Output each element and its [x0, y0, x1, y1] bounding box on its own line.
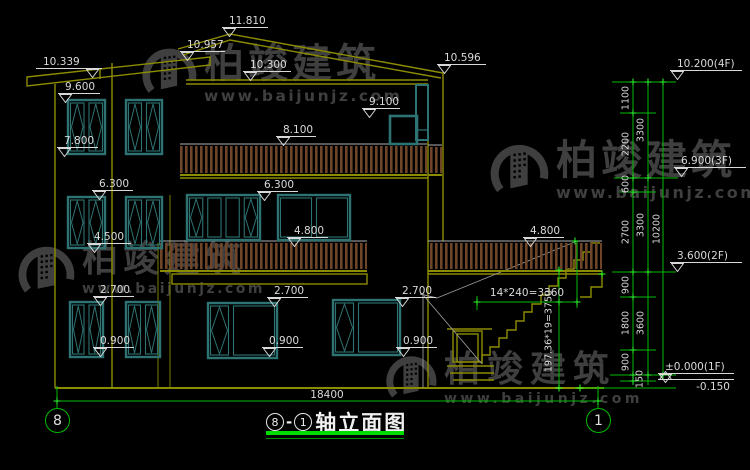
dimension-text: 3300 [636, 118, 647, 142]
title-separator: - [286, 413, 292, 431]
dimension-text: 150 [635, 370, 646, 388]
dimension-text: 18400 [310, 389, 343, 401]
axis-bubble-1-label: 1 [594, 413, 603, 429]
dimension-text: 197.36*19=3750 [544, 290, 555, 372]
title-underline-thin [266, 438, 404, 439]
dimension-text-layer: 1100220060027009001800900150330033003600… [0, 0, 750, 470]
dimension-text: 900 [621, 353, 632, 371]
dimension-text: 600 [621, 175, 632, 193]
dimension-text: 900 [621, 276, 632, 294]
dimension-text: 14*240=3360 [490, 287, 564, 299]
dimension-text: 2200 [621, 132, 632, 156]
dimension-text: 10200 [652, 214, 663, 244]
axis-bubble-1: 1 [586, 408, 611, 433]
dimension-text: 2700 [621, 220, 632, 244]
axis-bubble-8: 8 [45, 408, 70, 433]
dimension-text: 1800 [621, 311, 632, 335]
title-axis-from: 8 [266, 413, 284, 431]
title-axis-to: 1 [294, 413, 312, 431]
cad-elevation-canvas: 柏竣建筑 www.baijunjz.com 柏竣建筑 www.baijunjz.… [0, 0, 750, 470]
title-underline [266, 431, 404, 435]
dimension-text: 3600 [636, 311, 647, 335]
dimension-text: 3300 [636, 213, 647, 237]
axis-bubble-8-label: 8 [53, 413, 62, 429]
dimension-text: 1100 [621, 86, 632, 110]
